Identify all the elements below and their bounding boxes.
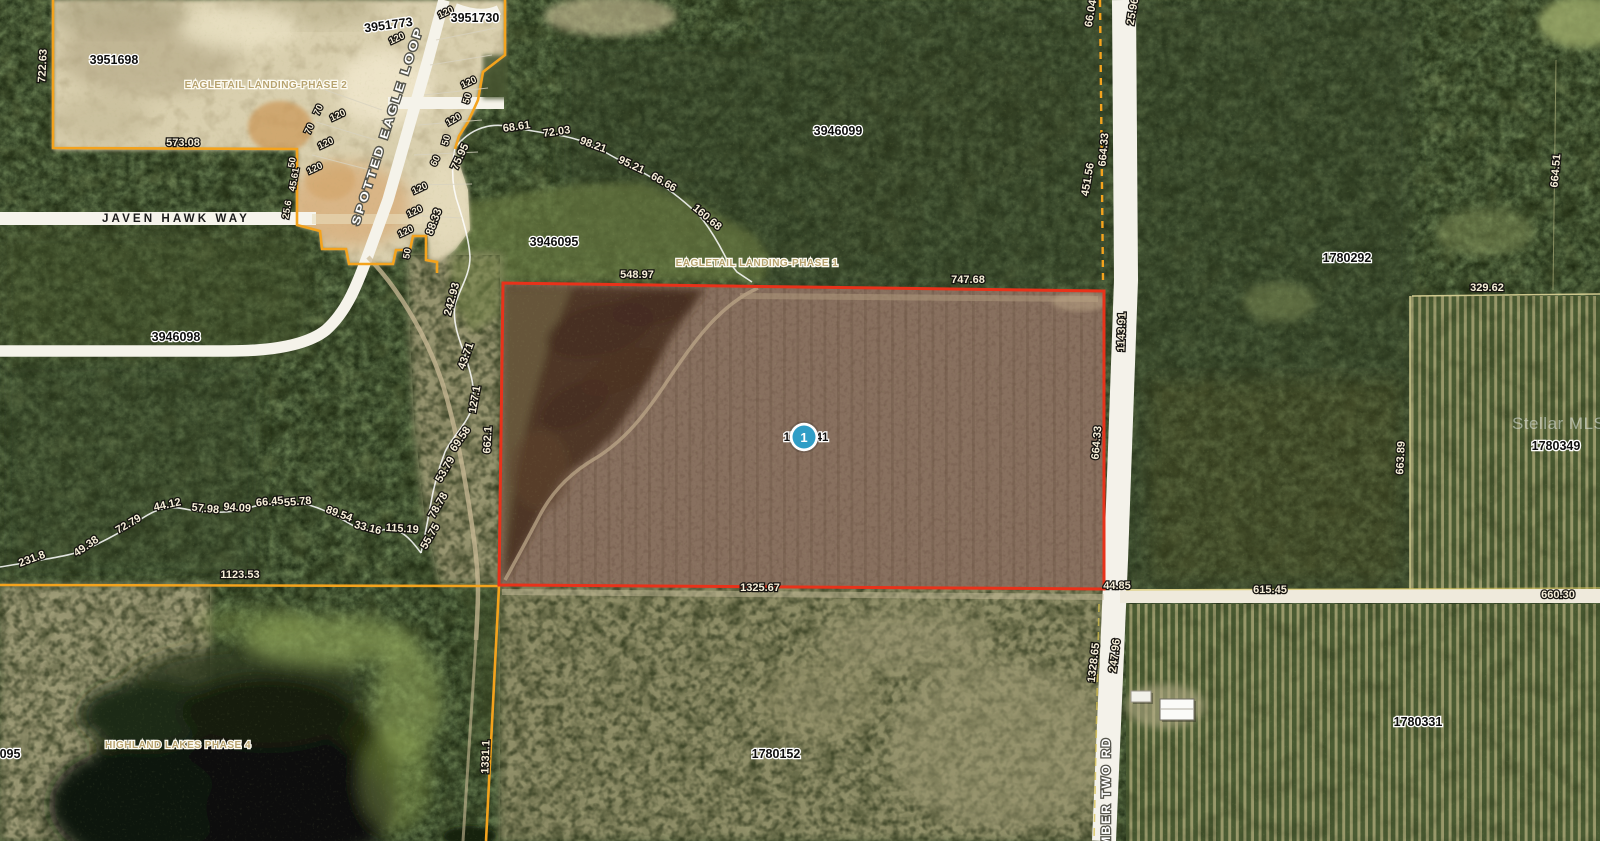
svg-text:3946095: 3946095 (530, 235, 579, 249)
svg-text:1: 1 (800, 430, 807, 445)
svg-text:1325.67: 1325.67 (740, 582, 780, 594)
svg-text:EAGLETAIL LANDING-PHASE 2: EAGLETAIL LANDING-PHASE 2 (185, 80, 348, 91)
svg-text:615.45: 615.45 (1253, 584, 1287, 596)
svg-text:1780292: 1780292 (1323, 251, 1372, 265)
svg-text:55.78: 55.78 (284, 495, 312, 509)
svg-text:Stellar MLS: Stellar MLS (1512, 414, 1600, 433)
svg-text:50: 50 (401, 247, 414, 259)
svg-text:HIGHLAND LAKES PHASE 4: HIGHLAND LAKES PHASE 4 (105, 740, 251, 751)
svg-text:TIMBER TWO RD: TIMBER TWO RD (1101, 737, 1113, 841)
svg-text:1780152: 1780152 (752, 747, 801, 761)
svg-text:94.09: 94.09 (223, 501, 251, 515)
svg-text:1143.91: 1143.91 (1115, 312, 1128, 352)
svg-text:1780349: 1780349 (1532, 439, 1581, 453)
svg-text:573.08: 573.08 (166, 137, 200, 149)
svg-text:66.45: 66.45 (256, 495, 284, 509)
svg-text:095: 095 (0, 747, 20, 761)
svg-text:722.63: 722.63 (36, 49, 50, 83)
svg-text:1780331: 1780331 (1394, 715, 1443, 729)
svg-text:662.1: 662.1 (481, 426, 494, 454)
svg-text:3951698: 3951698 (90, 53, 139, 67)
svg-text:EAGLETAIL LANDING-PHASE 1: EAGLETAIL LANDING-PHASE 1 (676, 258, 839, 269)
svg-text:3951730: 3951730 (451, 11, 500, 25)
svg-text:JAVEN HAWK WAY: JAVEN HAWK WAY (102, 213, 250, 225)
svg-text:3946098: 3946098 (152, 330, 201, 344)
svg-text:50: 50 (286, 156, 299, 168)
svg-text:329.62: 329.62 (1470, 282, 1504, 294)
svg-text:663.89: 663.89 (1394, 441, 1408, 475)
svg-text:548.97: 548.97 (620, 269, 654, 281)
svg-text:660.30: 660.30 (1541, 589, 1575, 601)
svg-text:747.68: 747.68 (951, 274, 985, 286)
svg-text:1331.1: 1331.1 (479, 740, 492, 774)
svg-text:115.19: 115.19 (385, 522, 419, 536)
svg-text:1123.53: 1123.53 (220, 569, 259, 581)
svg-text:44.85: 44.85 (1103, 580, 1131, 592)
svg-text:3946099: 3946099 (814, 124, 863, 138)
